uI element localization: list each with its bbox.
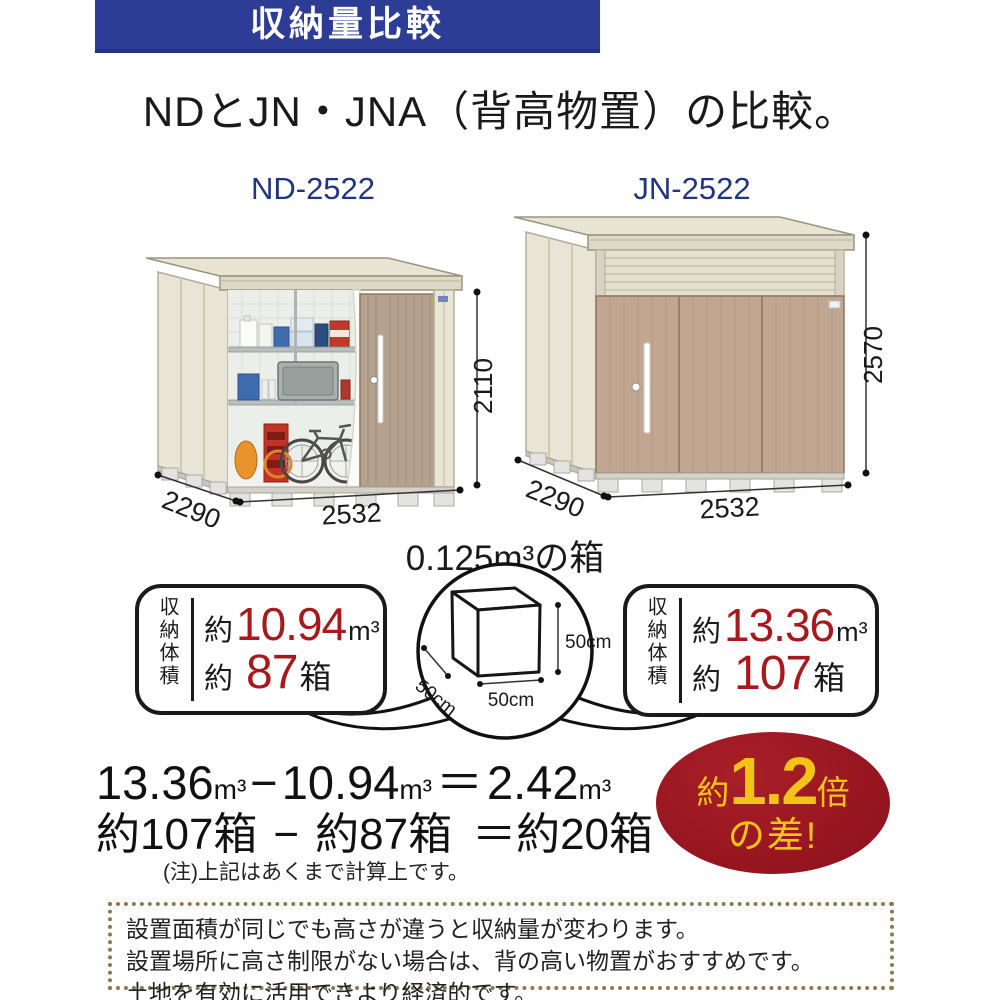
jn-width-label: 2532	[699, 491, 761, 524]
model-label-nd: ND-2522	[128, 171, 498, 207]
title-banner: 収納量比較	[95, 0, 600, 53]
approx-text: 約	[204, 664, 233, 694]
minus-sign: −	[273, 810, 299, 860]
calc-boxes-b: 約87箱	[315, 798, 452, 862]
nd-interior	[228, 290, 367, 487]
door-handle	[378, 335, 383, 423]
footer-note-box: 設置面積が同じでも高さが違うと収納量が変わります。 設置場所に高さ制限がない場合…	[108, 902, 894, 990]
jn-front-doors	[596, 296, 844, 473]
jn-shutter	[596, 250, 844, 296]
volume-box-nd: 収納体積 約 10.94 m³ 約 87 箱	[135, 584, 387, 715]
nd-shed-illustration: 2110 2532 2290	[128, 228, 498, 528]
badge-line1: 約 1.2 倍	[656, 748, 890, 815]
badge-times: 倍	[817, 776, 850, 809]
nd-width-label: 2532	[321, 497, 383, 528]
boxes-unit: 箱	[299, 661, 331, 695]
calc-boxes-c: 約20箱	[516, 798, 653, 862]
blue-bucket	[238, 374, 259, 400]
jn-left-wall	[526, 232, 596, 473]
volume-value: 13.36	[724, 601, 834, 649]
orange-bag	[235, 441, 257, 479]
nd-left-wall	[158, 272, 228, 487]
red-cans	[341, 380, 350, 399]
badge-approx: 約	[696, 776, 729, 809]
equals-sign: ＝	[472, 798, 516, 862]
jn-base-rail	[596, 473, 844, 479]
badge-value: 1.2	[729, 748, 816, 815]
brand-sticker	[438, 296, 448, 302]
jn-roof-fascia	[588, 235, 854, 250]
divider	[679, 598, 682, 703]
model-label-jn: JN-2522	[492, 171, 892, 207]
jn-shed-illustration: 2570 2532 2290	[492, 205, 892, 525]
white-jug-2	[259, 324, 272, 347]
boxes-row: 約 107 箱	[692, 649, 868, 699]
boxes-value: 107	[734, 649, 811, 699]
boxes-value: 87	[246, 648, 297, 698]
footer-line-1: 設置面積が同じでも高さが違うと収納量が変わります。	[126, 913, 876, 945]
nd-door	[360, 294, 434, 487]
approx-text: 約	[692, 665, 721, 695]
cube-drawing	[452, 588, 540, 676]
volume-value: 10.94	[236, 600, 346, 648]
approx-text: 約	[692, 617, 721, 647]
white-jug	[240, 320, 257, 347]
volume-label: 収納体積	[641, 596, 670, 705]
volume-label: 収納体積	[153, 596, 182, 703]
difference-badge: 約 1.2 倍 の差!	[656, 732, 890, 874]
divider	[191, 598, 194, 701]
jn-roof-top	[514, 217, 854, 235]
badge-line2: の差!	[656, 817, 890, 854]
volume-row: 約 13.36 m³	[692, 601, 868, 649]
volume-unit: m³	[348, 617, 379, 645]
jn-height-label: 2570	[858, 326, 888, 384]
cube-height-label: 50cm	[565, 632, 611, 653]
nd-roof-top	[146, 258, 462, 276]
nd-roof-fascia	[220, 276, 462, 290]
dark-blue-box	[315, 324, 328, 347]
boxes-row: 約 87 箱	[204, 648, 380, 698]
approx-text: 約	[204, 616, 233, 646]
door-lock	[371, 377, 378, 384]
page-title: NDとJN・JNA（背高物置）の比較。	[0, 78, 1000, 139]
cube-width-label: 50cm	[488, 690, 534, 711]
calc-note: (注)上記はあくまで計算上です。	[163, 856, 469, 886]
jn-door-handle	[644, 343, 650, 433]
footer-line-3: 土地を有効に活用できより経済的です。	[126, 977, 876, 1000]
jn-brand-sticker	[829, 301, 840, 308]
blue-box	[274, 327, 289, 347]
volume-unit: m³	[836, 618, 867, 646]
calc-boxes-line: 約107箱 − 約87箱 ＝ 約20箱	[96, 798, 653, 862]
boxes-unit: 箱	[813, 662, 845, 696]
banner-title: 収納量比較	[250, 5, 445, 44]
infographic-page: 収納量比較 NDとJN・JNA（背高物置）の比較。 ND-2522 JN-252…	[0, 0, 1000, 1000]
footer-line-2: 設置場所に高さ制限がない場合は、背の高い物置がおすすめです。	[126, 945, 876, 977]
jn-door-lock	[632, 383, 640, 391]
calc-boxes-a: 約107箱	[96, 798, 257, 862]
volume-box-jn: 収納体積 約 13.36 m³ 約 107 箱	[623, 584, 879, 717]
volume-row: 約 10.94 m³	[204, 600, 380, 648]
